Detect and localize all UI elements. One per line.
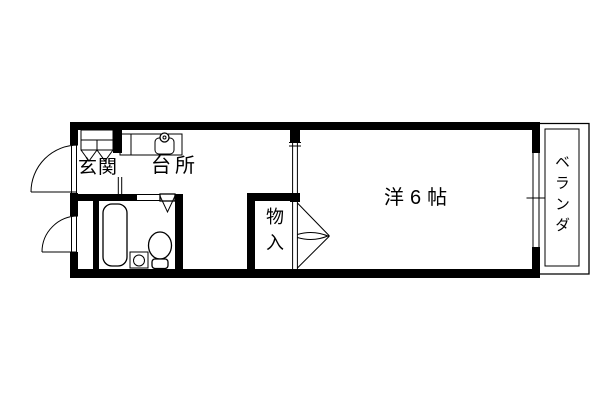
outer-wall-bottom [70,269,540,278]
entrance-door [31,145,78,193]
kitchen-counter [120,134,182,155]
entrance-step-edge [118,177,121,194]
kitchen-counter-icon [120,133,182,155]
entrance-door-swing-arc [31,145,78,192]
bathroom-fixtures [103,204,172,269]
balcony-window [527,153,546,247]
entrance-label: 玄関 [78,158,118,177]
outer-wall-right-lower [532,247,540,278]
dk-room-partition-door [289,141,301,193]
balcony-label: ベランダ [554,154,569,238]
kitchen-label: 台所 [151,156,199,176]
outer-wall-top [70,122,540,130]
faucet-icon [160,133,169,142]
bathroom-top-wall [70,194,137,201]
outer-wall-left-upper [70,122,78,145]
toilet-tank-icon [152,259,168,269]
wash-basin-icon [134,255,145,266]
outer-wall-right-upper [532,122,540,153]
closet-door-swing-upper [297,203,329,239]
outer-wall-left-lower [70,252,78,278]
toilet-bowl-icon [149,232,172,259]
closet-left-wall [247,193,255,269]
bathroom-right-wall [175,194,183,278]
service-door [42,216,78,252]
bathtub-icon [103,204,127,266]
bathroom-door [137,194,175,212]
floor-plan-drawing [0,0,600,400]
service-door-swing-arc [42,216,78,252]
closet-label: 物入 [265,207,283,259]
closet-doors [293,202,329,269]
main-room-label: 洋6帖 [384,188,453,208]
closet-door-swing-lower [297,233,329,268]
partition-wall-stub-top [290,130,300,142]
floor-plan: 玄関 台所 物入 洋6帖 ベランダ [0,0,600,400]
pipe-space-divider-wall [93,201,99,269]
entrance-kitchen-wall-stub [113,130,122,153]
